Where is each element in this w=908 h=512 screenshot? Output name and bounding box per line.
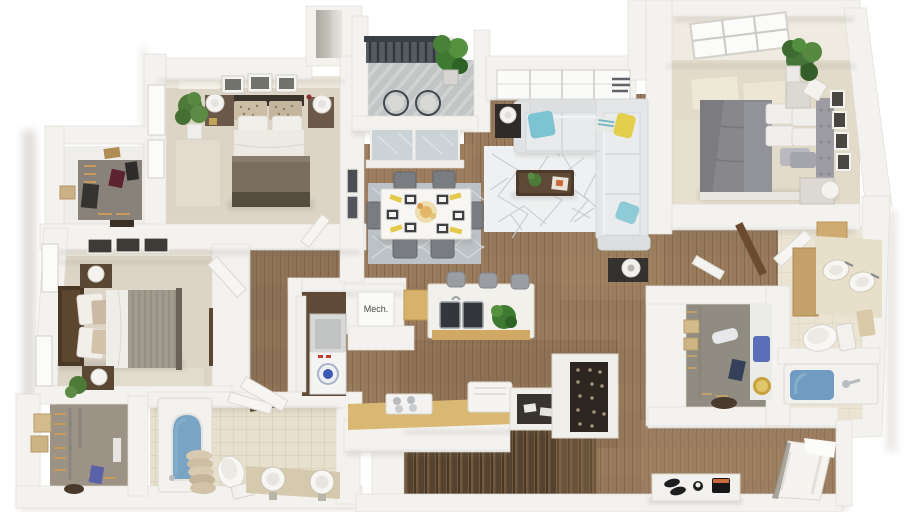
svg-text:Mech.: Mech.: [364, 304, 389, 314]
